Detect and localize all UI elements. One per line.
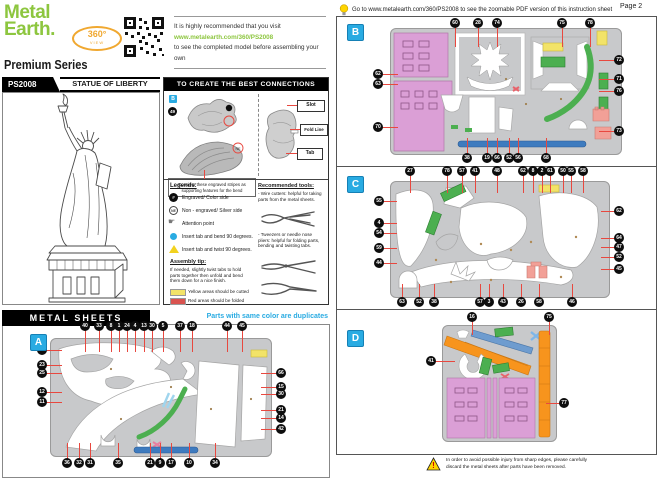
qr-note-line1: It is highly recommended that you visit (174, 22, 326, 33)
slot-label: Slot (297, 100, 325, 112)
tab-leader (286, 153, 297, 154)
metal-sheets-title: METAL SHEETS (2, 310, 150, 326)
sheet-c-parts (391, 182, 609, 297)
sheet-a (50, 338, 272, 457)
warning-line2: discard the metal sheets after parts hav… (446, 465, 587, 472)
connections-panel: TO CREATE THE BEST CONNECTIONS B 49 NE C… (163, 77, 329, 305)
statue-of-liberty-drawing (3, 93, 159, 304)
warning-triangle-icon: ! (426, 457, 441, 471)
product-title: STATUE OF LIBERTY (60, 77, 160, 92)
sheet-d (442, 325, 557, 442)
tools-item1: - Wire cutters: helpful for taking parts… (258, 191, 324, 202)
panel-divider (258, 94, 259, 176)
legend-twist-text: Insert tab and twist 90 degrees. (182, 247, 252, 253)
sample-part-number: 49 (168, 107, 177, 116)
qr-note: It is highly recommended that you visit … (174, 16, 326, 69)
warning-line1: In order to avoid possible injury from s… (446, 458, 587, 465)
ne-marker: NE (236, 147, 242, 151)
yellow-note: Yellow areas should be cutted (188, 289, 249, 295)
duplicates-note: Parts with same color are duplicates (175, 313, 328, 320)
red-note: Red areas should be folded (188, 298, 244, 304)
sheet-c-badge: C (347, 176, 364, 193)
attention-hand-icon: ☛ (168, 217, 175, 226)
metal-earth-logo: Metal Earth. (4, 4, 55, 39)
legends-title: Legends: (170, 183, 197, 189)
foldline-leader (290, 129, 300, 130)
page-number: Page 2 (620, 3, 642, 10)
assembly-tip-title: Assembly tip: (170, 259, 206, 265)
tab-label: Tab (297, 148, 323, 160)
fold-line-label: Fold Line (300, 124, 328, 136)
legend-bend-text: Insert tab and bend 90 degrees. (182, 234, 253, 240)
sample-sheet-badge: B (169, 95, 177, 103)
sheet-d-badge: D (347, 330, 364, 347)
tools-item2: - Tweezers or needle nose pliers: helpfu… (258, 232, 324, 249)
cyan-dot-icon (170, 233, 177, 240)
badge-view-text: VIEW (74, 41, 120, 44)
legend-divider (164, 179, 328, 180)
lightbulb-icon (339, 4, 349, 16)
yellow-swatch (170, 289, 186, 296)
sheet-b-badge: B (347, 24, 364, 41)
qr-note-line2: to see the completed model before assemb… (174, 43, 326, 64)
product-sku-banner: PS2008 (2, 77, 60, 92)
badge-360: 360° VIEW (72, 26, 122, 51)
caption-leader (204, 170, 205, 179)
legend-attention-text: Attention point (182, 221, 214, 227)
engraved-circle-icon: # (169, 193, 178, 202)
red-swatch (170, 298, 186, 305)
connections-title: TO CREATE THE BEST CONNECTIONS (164, 78, 328, 91)
yellow-triangle-icon (169, 245, 179, 253)
legend-ne-text: Non - engraved/ Silver side (182, 208, 242, 214)
needle-nose-pliers-icon (260, 257, 318, 277)
statue-illustration-box (2, 92, 160, 305)
svg-text:!: ! (432, 461, 435, 470)
sheet-c (390, 181, 610, 298)
divider-bc (337, 166, 656, 167)
wire-cutters-icon (260, 209, 318, 229)
example-part-top (182, 94, 244, 138)
divider-cd (337, 309, 656, 310)
tweezers-icon (260, 279, 318, 299)
series-label: Premium Series (4, 57, 88, 72)
assembly-tip-text: If needed, slightly twist tabs to hold p… (170, 267, 250, 284)
logo-line2: Earth. (4, 21, 55, 38)
qr-code (122, 15, 166, 59)
sheet-a-parts (51, 339, 271, 456)
page-tip: Go to www.metalearth.com/360/PS2008 to s… (352, 7, 612, 13)
slot-leader (287, 105, 297, 106)
example-part-bottom: NE (172, 136, 250, 178)
qr-code-graphic (122, 15, 166, 59)
sheet-b (390, 28, 622, 155)
example-part-labeled (261, 106, 301, 164)
ne-circle-icon: NE (169, 206, 178, 215)
tools-title: Recommended tools: (258, 183, 314, 189)
sheet-d-parts (443, 326, 556, 441)
legend-engraved-text: Engraved/ Color side (182, 195, 229, 201)
qr-note-link: www.metalearth.com/360/PS2008 (174, 33, 326, 44)
sheet-b-parts (391, 29, 621, 154)
sheet-a-badge: A (30, 334, 47, 351)
warning-text: In order to avoid possible injury from s… (446, 458, 587, 471)
